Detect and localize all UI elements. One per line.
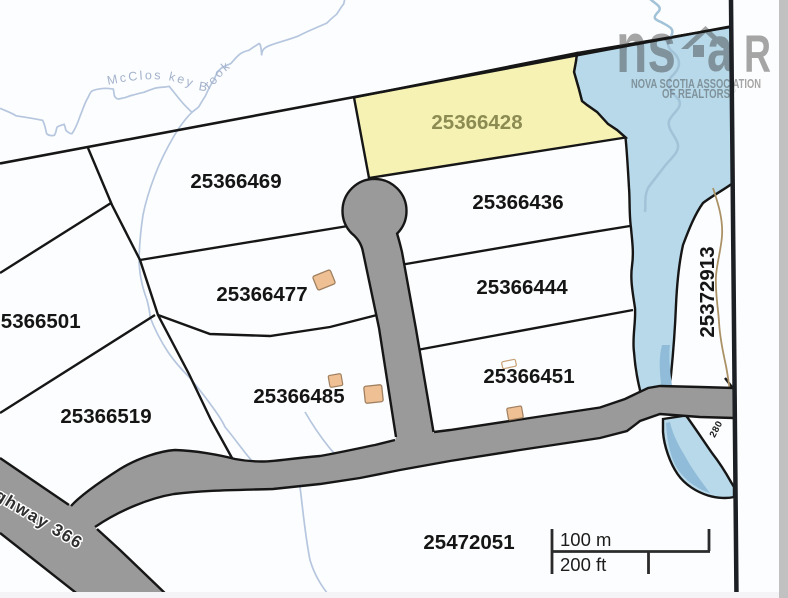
svg-text:25472051: 25472051: [423, 531, 514, 554]
svg-text:200 ft: 200 ft: [560, 554, 606, 575]
svg-text:25372913: 25372913: [696, 246, 719, 337]
svg-text:25366477: 25366477: [216, 283, 307, 306]
svg-text:25366501: 25366501: [0, 310, 81, 333]
svg-text:OF REALTORS: OF REALTORS: [662, 87, 730, 101]
svg-text:100 m: 100 m: [560, 529, 611, 550]
svg-text:R: R: [744, 25, 771, 84]
svg-text:25366428: 25366428: [431, 111, 522, 134]
svg-text:25366451: 25366451: [483, 365, 574, 388]
svg-text:25366436: 25366436: [472, 191, 563, 214]
svg-text:25366485: 25366485: [253, 385, 344, 408]
svg-text:25366469: 25366469: [190, 170, 281, 193]
svg-text:25366444: 25366444: [476, 276, 568, 299]
svg-text:25366519: 25366519: [60, 405, 151, 428]
